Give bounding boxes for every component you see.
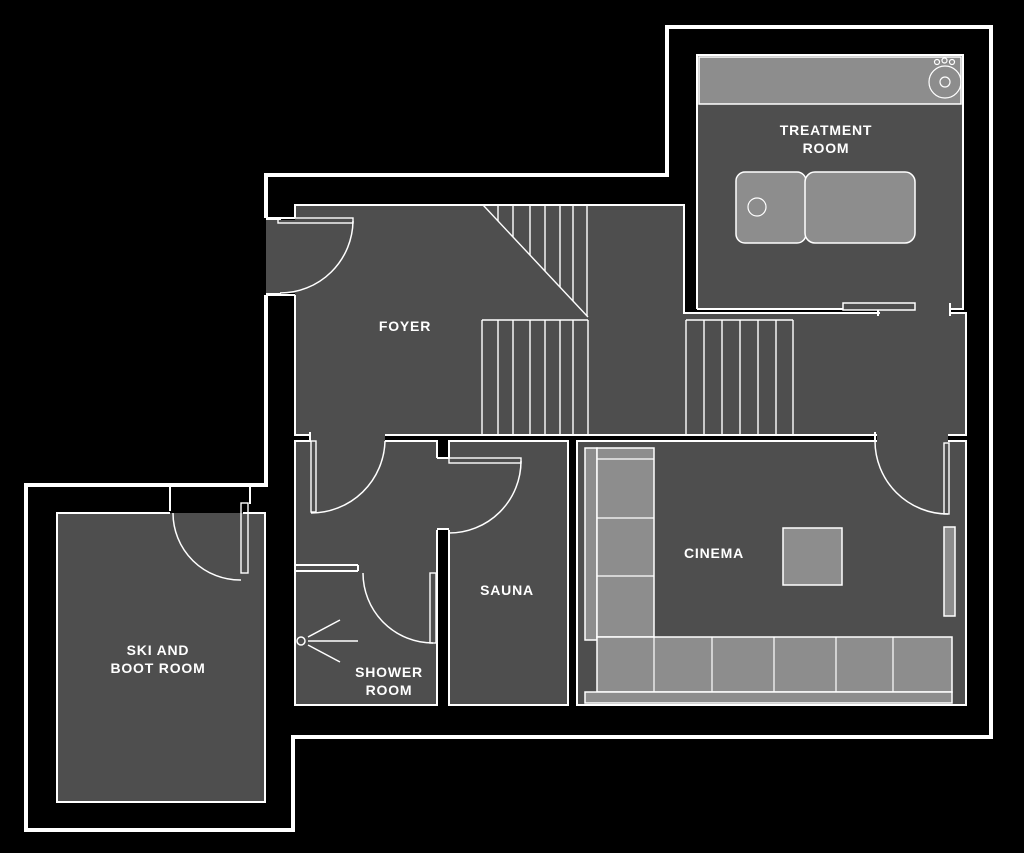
foyer-label: FOYER — [379, 318, 431, 334]
counter — [699, 57, 961, 104]
floor-plan: FOYER TREATMENT ROOM CINEMA SAUNA SHOWER… — [0, 0, 1024, 853]
sauna-floor — [449, 441, 568, 705]
cinema-label: CINEMA — [684, 545, 744, 561]
sauna-label: SAUNA — [480, 582, 534, 598]
hall-door-passage — [311, 432, 385, 442]
treatment-room-label-line2: ROOM — [803, 140, 850, 156]
massage-table-icon — [736, 172, 915, 243]
massage-table-body — [805, 172, 915, 243]
ski-door-jambs — [170, 485, 250, 511]
ski-boot-room-label-line2: BOOT ROOM — [110, 660, 205, 676]
cinema-door-passage — [877, 432, 948, 442]
sofa-back-left — [585, 448, 597, 640]
treatment-room-label-line1: TREATMENT — [780, 122, 873, 138]
ski-boot-room-label-line1: SKI AND — [127, 642, 190, 658]
sauna-door-passage — [437, 459, 449, 529]
sofa-back-bottom — [585, 692, 952, 703]
shower-room-label-line2: ROOM — [366, 682, 413, 698]
treatment-sliding-door — [843, 303, 915, 310]
tv-screen-icon — [944, 527, 955, 616]
massage-table-head — [736, 172, 806, 243]
sofa-seats-left — [597, 448, 654, 637]
coffee-table-icon — [783, 528, 842, 585]
entry-recess — [266, 220, 295, 293]
floor-plan-svg: FOYER TREATMENT ROOM CINEMA SAUNA SHOWER… — [0, 0, 1024, 853]
shower-room-label-line1: SHOWER — [355, 664, 423, 680]
